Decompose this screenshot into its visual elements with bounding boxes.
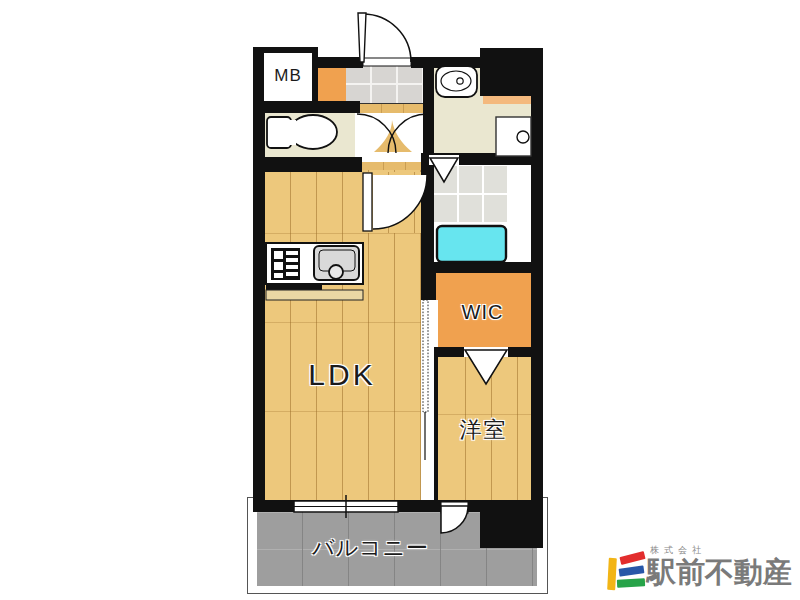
- wall-wic-bottom-right: [508, 347, 531, 357]
- entry-step-strip: [360, 103, 427, 113]
- floorplan-canvas: MB WIC LDK 洋室 バルコニー 株式会社 駅前不動産: [0, 0, 800, 600]
- logo-company-name: 駅前不動産: [647, 553, 792, 593]
- wall-washroom-bottom: [421, 153, 531, 165]
- wall-outer-right: [531, 48, 543, 512]
- shoe-cabinet: [318, 63, 346, 102]
- company-logo: 株式会社 駅前不動産: [600, 538, 795, 594]
- logo-bar-red: [619, 551, 645, 565]
- wall-toilet-top: [253, 101, 360, 113]
- wall-toilet-bottom: [253, 157, 362, 172]
- entrance-door-arc: [363, 14, 411, 62]
- entrance-door-panel: [358, 13, 366, 62]
- wall-top-right: [411, 57, 482, 68]
- room-toilet: [265, 112, 355, 158]
- label-wic: WIC: [434, 301, 531, 324]
- ldk-door-bay: [363, 172, 428, 233]
- wic-door-gap: [464, 348, 508, 357]
- entry-genkan-floor: [346, 63, 425, 103]
- wall-bath-bottom: [434, 262, 531, 273]
- wall-top-left: [318, 57, 363, 68]
- pillar-balcony-right: [480, 503, 543, 548]
- label-ldk: LDK: [282, 358, 402, 392]
- logo-bar-yellow: [607, 558, 617, 590]
- wall-wic-bottom-left: [434, 347, 464, 357]
- logo-bar-blue: [619, 565, 645, 576]
- logo-bar-green: [617, 578, 645, 587]
- hall-lower-white: [362, 153, 428, 162]
- label-bedroom: 洋室: [436, 415, 531, 445]
- wall-ldk-divider: [421, 165, 434, 300]
- wall-genkan-washroom: [423, 58, 434, 165]
- wall-outer-left: [253, 47, 265, 512]
- label-mb: MB: [264, 66, 312, 86]
- hall-floor: [355, 113, 428, 153]
- label-balcony: バルコニー: [288, 533, 453, 563]
- bathroom-tile-floor: [434, 163, 508, 222]
